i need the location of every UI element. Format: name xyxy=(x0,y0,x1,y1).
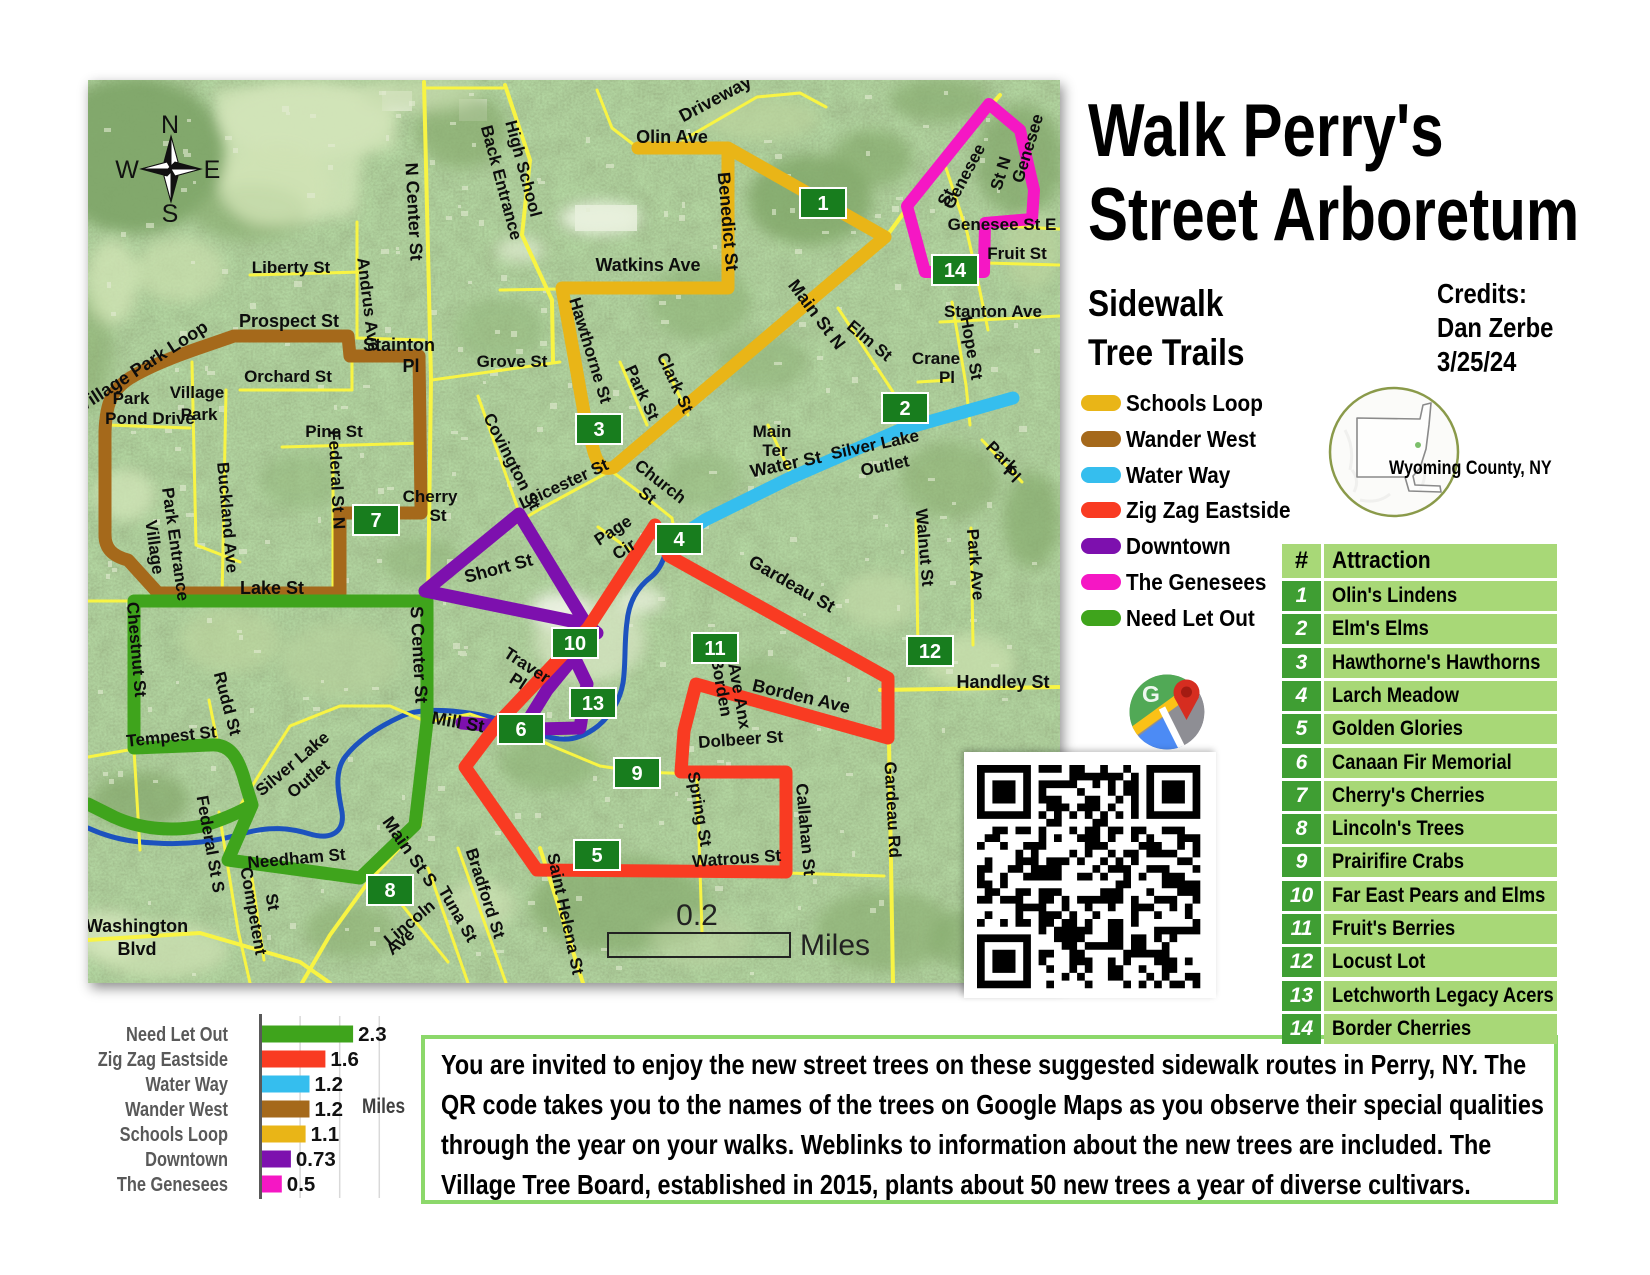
svg-text:Miles: Miles xyxy=(362,1096,405,1119)
svg-text:0.5: 0.5 xyxy=(287,1173,316,1196)
svg-text:4: 4 xyxy=(673,529,685,551)
svg-text:Park: Park xyxy=(113,389,150,408)
svg-text:Pl: Pl xyxy=(939,368,955,387)
svg-text:13: 13 xyxy=(582,693,604,715)
svg-text:St: St xyxy=(430,506,447,525)
svg-text:8: 8 xyxy=(384,880,395,902)
svg-text:7: 7 xyxy=(370,510,381,532)
svg-text:Prospect St: Prospect St xyxy=(239,311,339,331)
svg-text:Genesee St E: Genesee St E xyxy=(948,215,1057,234)
svg-text:Need Let Out: Need Let Out xyxy=(126,1022,228,1045)
svg-text:S: S xyxy=(162,200,179,228)
svg-text:1.2: 1.2 xyxy=(315,1098,344,1121)
svg-text:Blvd: Blvd xyxy=(117,939,156,959)
svg-text:1: 1 xyxy=(817,193,828,215)
svg-text:Stainton: Stainton xyxy=(363,335,435,355)
svg-text:12: 12 xyxy=(919,641,941,663)
svg-text:Main: Main xyxy=(753,422,792,441)
svg-text:Grove St: Grove St xyxy=(477,352,548,371)
svg-text:0.2: 0.2 xyxy=(676,899,718,932)
svg-text:Cherry: Cherry xyxy=(403,487,458,506)
svg-text:Village: Village xyxy=(170,383,225,402)
svg-text:Miles: Miles xyxy=(800,929,870,962)
svg-text:Park: Park xyxy=(181,405,218,424)
svg-text:1.1: 1.1 xyxy=(311,1123,340,1146)
svg-text:5: 5 xyxy=(591,845,602,867)
svg-text:G: G xyxy=(1142,681,1160,707)
svg-text:Handley St: Handley St xyxy=(956,672,1049,692)
svg-text:3: 3 xyxy=(593,419,604,441)
svg-text:Zig Zag Eastside: Zig Zag Eastside xyxy=(98,1047,228,1070)
svg-text:Orchard St: Orchard St xyxy=(244,367,332,386)
svg-text:N: N xyxy=(161,111,179,139)
svg-text:10: 10 xyxy=(564,633,586,655)
svg-text:Washington: Washington xyxy=(88,916,188,936)
svg-text:0.73: 0.73 xyxy=(296,1148,336,1171)
svg-text:2: 2 xyxy=(899,398,910,420)
svg-text:The Genesees: The Genesees xyxy=(117,1172,228,1195)
svg-text:Watkins Ave: Watkins Ave xyxy=(595,255,700,275)
svg-text:9: 9 xyxy=(631,763,642,785)
svg-text:Schools Loop: Schools Loop xyxy=(120,1122,228,1145)
svg-text:Wander West: Wander West xyxy=(125,1097,228,1120)
svg-text:Fruit St: Fruit St xyxy=(987,244,1047,263)
svg-text:11: 11 xyxy=(704,638,725,660)
svg-text:Liberty St: Liberty St xyxy=(252,258,331,277)
svg-text:2.3: 2.3 xyxy=(358,1023,387,1046)
svg-text:Olin Ave: Olin Ave xyxy=(636,127,708,147)
svg-text:Lake St: Lake St xyxy=(240,578,304,598)
svg-text:1.2: 1.2 xyxy=(315,1073,344,1096)
svg-text:6: 6 xyxy=(515,719,526,741)
svg-text:Downtown: Downtown xyxy=(145,1147,228,1170)
svg-text:Water Way: Water Way xyxy=(145,1072,228,1095)
svg-text:E: E xyxy=(204,156,221,184)
svg-text:1.6: 1.6 xyxy=(330,1048,359,1071)
svg-text:14: 14 xyxy=(944,260,967,282)
svg-text:Pl: Pl xyxy=(402,356,419,376)
svg-text:Crane: Crane xyxy=(912,349,960,368)
svg-text:W: W xyxy=(115,156,139,184)
